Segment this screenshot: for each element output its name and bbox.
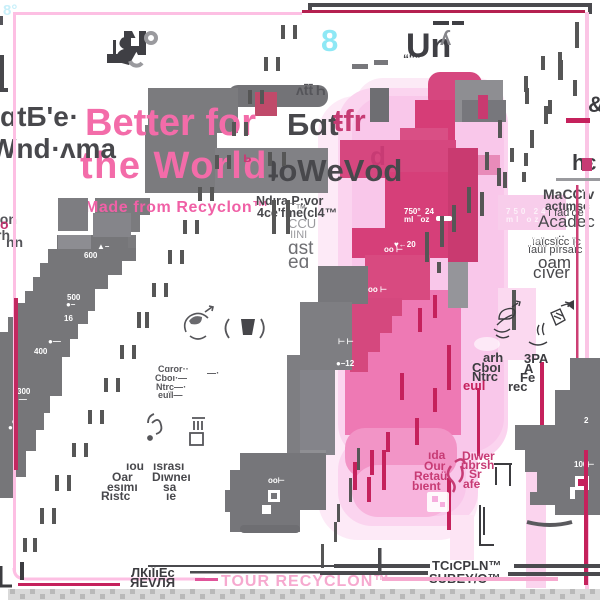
svg-text:rec: rec [508, 379, 528, 394]
svg-text:oo ⊢: oo ⊢ [368, 284, 387, 294]
svg-text:oo⊢: oo⊢ [268, 475, 285, 485]
svg-text:⊢ ⊢: ⊢ ⊢ [338, 336, 354, 346]
svg-text:euïl—: euïl— [158, 390, 183, 400]
svg-text:ml oz: ml oz [506, 215, 541, 224]
svg-text:&: & [588, 92, 600, 117]
svg-text:♥←20: ♥←20 [394, 240, 416, 249]
svg-text:400: 400 [34, 347, 48, 356]
svg-text:—·: —· [207, 368, 219, 378]
svg-text:Rıstc: Rıstc [101, 489, 131, 503]
svg-text:TOUR RECYCLON™: TOUR RECYCLON™ [221, 573, 390, 590]
svg-text:▲–: ▲– [97, 242, 110, 251]
svg-text:600: 600 [84, 251, 98, 260]
svg-text:●–12: ●–12 [336, 359, 355, 368]
svg-text:●–: ●– [66, 300, 76, 309]
svg-text:ʎ: ʎ [440, 28, 452, 50]
svg-text:bıent: bıent [412, 479, 441, 493]
svg-text:ɑtБ'е·: ɑtБ'е· [0, 101, 78, 132]
svg-text:8°: 8° [3, 2, 17, 19]
svg-text:ʌt̄t̄ Һ: ʌt̄t̄ Һ [296, 82, 326, 98]
svg-text:euıl: euıl [463, 378, 485, 393]
svg-text:16: 16 [64, 314, 73, 323]
svg-text:●: ● [8, 423, 13, 432]
svg-text:ЯЕVЛЯ: ЯЕVЛЯ [130, 575, 175, 590]
svg-text:“''”: “''” [403, 52, 421, 66]
svg-text:ıe: ıe [166, 489, 176, 503]
svg-text:ь: ь [243, 149, 252, 165]
svg-text:ŧfr: ŧfr [333, 103, 366, 138]
svg-text:ml ‾oz: ml ‾oz [404, 215, 429, 224]
svg-text:8: 8 [321, 23, 338, 58]
svg-text:Бɑt: Бɑt [287, 107, 339, 142]
svg-text:Wnd·ʌmа: Wnd·ʌmа [0, 133, 116, 164]
svg-text:afe: afe [463, 477, 481, 491]
svg-text:●—: ●— [48, 337, 61, 346]
svg-text:d: d [370, 141, 386, 171]
svg-text:2: 2 [584, 416, 589, 425]
svg-text:eɑ: eɑ [288, 252, 309, 273]
svg-text:cıver: cıver [533, 263, 570, 282]
